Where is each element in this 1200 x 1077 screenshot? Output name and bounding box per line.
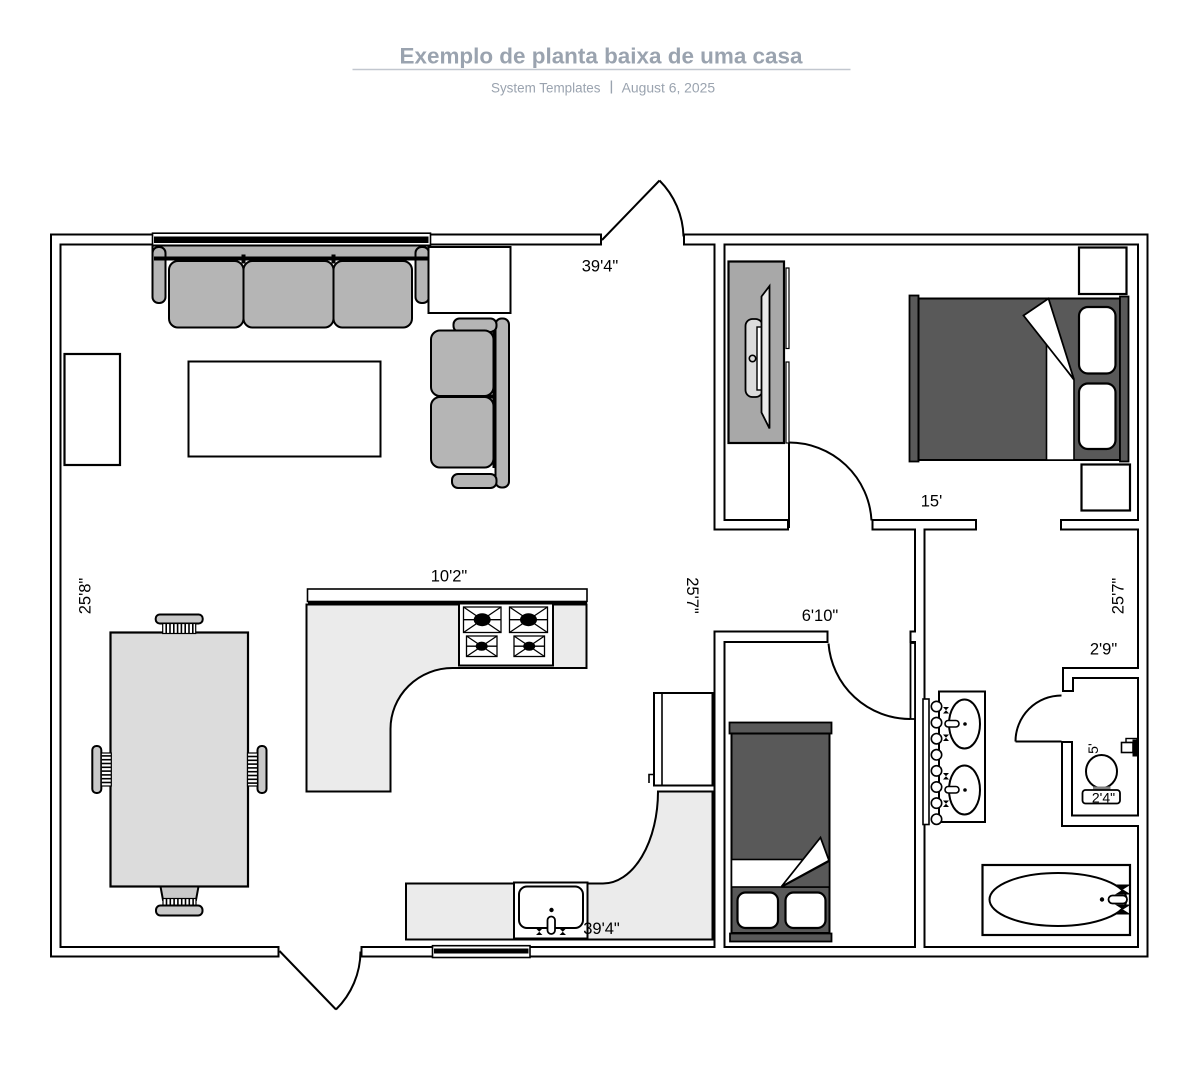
svg-text:6'10": 6'10"	[802, 607, 839, 625]
svg-text:System Templates: System Templates	[491, 80, 601, 95]
svg-text:25'8": 25'8"	[76, 578, 94, 615]
svg-text:2'4": 2'4"	[1092, 790, 1115, 806]
svg-text:Exemplo de planta baixa de uma: Exemplo de planta baixa de uma casa	[400, 44, 804, 69]
svg-text:August 6, 2025: August 6, 2025	[622, 80, 716, 95]
svg-text:5': 5'	[1085, 743, 1101, 753]
svg-text:10'2": 10'2"	[431, 568, 468, 586]
svg-text:2'9": 2'9"	[1090, 641, 1118, 659]
svg-text:25'7": 25'7"	[1110, 578, 1128, 615]
svg-text:15': 15'	[921, 493, 943, 511]
svg-text:39'4": 39'4"	[582, 258, 619, 276]
svg-text:39'4": 39'4"	[583, 920, 620, 938]
svg-text:25'7": 25'7"	[683, 577, 701, 614]
